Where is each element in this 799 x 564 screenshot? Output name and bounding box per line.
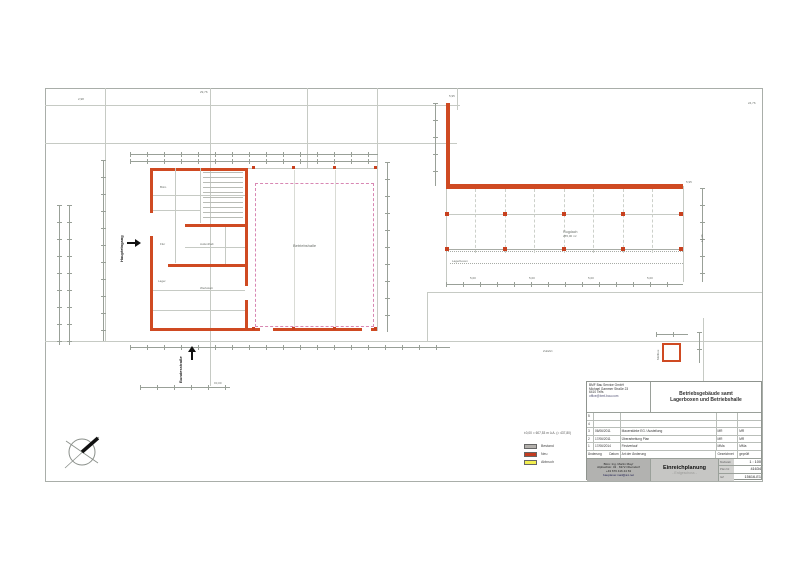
hall-column — [252, 166, 255, 169]
room-label: Büro — [160, 186, 166, 189]
legend-swatch-neu — [524, 452, 537, 457]
entrance-arrow-icon — [127, 239, 141, 247]
storage-column — [621, 212, 625, 216]
dim-text: 5,95 — [686, 181, 692, 184]
storage-column — [679, 212, 683, 216]
construction-line — [446, 188, 447, 282]
title-block: BMF Bau Service GmbH Michael Gammer Stra… — [586, 381, 762, 480]
partition-line — [153, 290, 245, 291]
rev-date: 17/06/2014 — [594, 443, 621, 450]
dimension-chain — [130, 159, 378, 164]
project-title-block: Betriebsgebäude samt Lagerboxen und Betr… — [651, 382, 761, 413]
dim-text: 5,00 — [529, 277, 535, 280]
rev-header-gepr: geprüft — [738, 451, 761, 458]
dimension-chain — [140, 385, 230, 390]
company-line: office@bmf-bau.com — [589, 395, 648, 399]
meta-label: Plan Nr. — [719, 466, 734, 472]
wall-segment — [168, 264, 247, 267]
storage-row-line — [450, 263, 683, 264]
hall-edge-line — [377, 168, 378, 331]
project-title: Lagerboxen und Betriebshalle — [670, 397, 742, 404]
hall-grid-line — [335, 170, 336, 328]
construction-line — [45, 105, 460, 106]
wall-segment — [150, 328, 260, 331]
street-label: Bundesstraße — [179, 356, 184, 383]
architect-line: bauplaner.mail@a1.net — [603, 474, 634, 478]
revision-row: 5 — [587, 413, 761, 421]
hall-column — [333, 166, 336, 169]
rev-nr: 5 — [587, 413, 594, 420]
canopy-area-label: 255,00 m² — [563, 235, 577, 238]
rev-text: Mauerstärke EG / Austeilung — [621, 428, 717, 435]
partition-line — [153, 310, 245, 311]
dimension-chain — [446, 282, 683, 287]
boundary-wall — [446, 103, 450, 186]
room-label: Werkstatt — [200, 287, 213, 290]
storage-bay-line — [593, 189, 594, 253]
hall-column — [252, 327, 255, 330]
wall-segment — [150, 236, 153, 331]
dim-text: ±0,00 — [214, 382, 222, 385]
wall-segment — [150, 168, 153, 213]
dimension-chain — [433, 103, 438, 186]
wall-segment — [185, 224, 247, 227]
construction-line — [427, 292, 762, 293]
architect-block: Büro: Ing. Martin Mayr Alpbachstr. 43 · … — [587, 459, 651, 481]
legend-label-abbruch: Abbruch — [541, 460, 554, 464]
hall-label: Betriebshalle — [293, 244, 316, 249]
rev-nr: 3 — [587, 428, 594, 435]
dim-text: 5,95 — [449, 95, 455, 98]
construction-line — [427, 292, 428, 341]
revision-row: 3 06/06/2011 Mauerstärke EG / Austeilung… — [587, 428, 761, 436]
driveway-label: Zufahrt — [543, 350, 553, 353]
storage-bay-line — [534, 189, 535, 253]
rev-nr: 4 — [587, 421, 594, 428]
dimension-chain — [656, 332, 688, 337]
storage-bay-line — [505, 189, 506, 253]
legend-label-neu: Neu — [541, 452, 547, 456]
waste-box-outline — [662, 343, 681, 362]
storage-column — [445, 247, 449, 251]
rev-gepr: MR — [738, 428, 761, 435]
rev-gepr — [738, 413, 761, 420]
partition-line — [153, 210, 200, 211]
rev-gepr: MMa — [738, 443, 761, 450]
dim-text: 2,98 — [78, 98, 84, 101]
meta-row: Maßstab 1 : 100 — [719, 459, 763, 466]
dimension-chain — [697, 332, 702, 363]
plan-sheet: Müllbox Büro Flur Lager Werkstatt Aufent… — [0, 0, 799, 564]
revision-row: 1 17/06/2014 Firstverlauf MMa MMa — [587, 443, 761, 451]
storage-column — [445, 212, 449, 216]
dimension-chain — [57, 205, 62, 345]
rev-gepr: MR — [738, 436, 761, 443]
rev-gez: MR — [717, 436, 739, 443]
rev-text — [621, 413, 717, 420]
legend-level-note: ±0,00 = 607,53 m ü.A. (= 437,80) — [524, 432, 571, 436]
hall-column — [292, 166, 295, 169]
storage-bay-line — [564, 189, 565, 253]
hall-roof-outline — [255, 183, 374, 327]
hall-column — [333, 327, 336, 330]
dim-text: 5,00 — [588, 277, 594, 280]
storage-column — [503, 212, 507, 216]
compass-icon — [58, 428, 106, 476]
hall-edge-line — [248, 168, 378, 169]
storage-column — [562, 247, 566, 251]
company-block: BMF Bau Service GmbH Michael Gammer Stra… — [587, 382, 651, 413]
dimension-chain — [130, 152, 378, 157]
room-label: Lager — [158, 280, 166, 283]
legend-swatch-abbruch — [524, 460, 537, 465]
meta-value-scale: 1 : 100 — [734, 460, 763, 464]
revision-row: 2 17/06/2011 Überarbeitung Plan MR MR — [587, 436, 761, 444]
dim-text: 12,46 — [701, 234, 704, 242]
storage-column — [679, 247, 683, 251]
construction-line — [457, 88, 458, 110]
construction-line — [703, 318, 704, 381]
rev-text: Firstverlauf — [621, 443, 717, 450]
meta-label: GZ — [719, 474, 734, 481]
rev-gez: MR — [717, 428, 739, 435]
storage-column — [621, 247, 625, 251]
meta-row: Plan Nr. 41634 — [719, 466, 763, 473]
construction-line — [683, 186, 684, 282]
rev-header-art: Art der Änderung — [621, 451, 717, 458]
rev-header-aenderung: Änderung — [588, 451, 602, 458]
dim-text: 29,76 — [200, 91, 208, 94]
rev-gez — [717, 421, 739, 428]
rev-nr: 1 — [587, 443, 594, 450]
waste-box-label: Müllbox — [657, 350, 660, 360]
rev-gez — [717, 413, 739, 420]
storage-column — [503, 247, 507, 251]
revision-row: 4 — [587, 421, 761, 429]
legend-label-bestand: Bestand — [541, 444, 554, 448]
rev-date — [594, 421, 621, 428]
dimension-chain — [385, 162, 390, 332]
rev-nr: 2 — [587, 436, 594, 443]
wall-segment — [150, 168, 248, 171]
storage-bay-line — [475, 189, 476, 253]
rev-header-datum: Datum — [609, 451, 618, 458]
meta-label: Maßstab — [719, 459, 734, 465]
dim-text: 5,00 — [647, 277, 653, 280]
meta-value-gz: 15616-E1 — [734, 475, 763, 479]
rev-header-gez: Gezeichnet — [716, 451, 738, 458]
construction-line — [45, 143, 457, 144]
meta-value-plan-nr: 41634 — [734, 467, 763, 471]
rev-gez: MMa — [717, 443, 739, 450]
plan-type-block: Einreichplanung - Erdgeschoss - — [651, 459, 719, 481]
partition-line — [225, 227, 226, 264]
wall-segment — [245, 300, 248, 331]
room-label: Aufenthalt — [200, 243, 214, 246]
rev-date: 17/06/2011 — [594, 436, 621, 443]
entrance-arrow-icon — [188, 346, 196, 360]
storage-label: Lagerboxen — [452, 260, 468, 263]
meta-block: Maßstab 1 : 100 Plan Nr. 41634 GZ 15616-… — [719, 459, 763, 481]
partition-line — [185, 247, 245, 248]
wall-segment — [245, 168, 248, 286]
dim-text: 5,00 — [470, 277, 476, 280]
legend-swatch-bestand — [524, 444, 537, 449]
room-label: Flur — [160, 243, 165, 246]
wall-segment — [273, 328, 362, 331]
plan-subtitle: - Erdgeschoss - — [672, 471, 697, 475]
construction-line — [210, 88, 211, 386]
storage-bay-line — [623, 189, 624, 253]
rev-date — [594, 413, 621, 420]
hall-column — [292, 327, 295, 330]
stairs — [203, 172, 243, 220]
rev-text — [621, 421, 717, 428]
main-entrance-label: Haupteingang — [120, 235, 125, 262]
construction-line — [45, 341, 762, 342]
dimension-chain — [101, 160, 106, 341]
revision-header-row: Änderung Datum Art der Änderung Gezeichn… — [587, 451, 761, 459]
hall-grid-line — [294, 170, 295, 328]
storage-bay-line — [652, 189, 653, 253]
rev-gepr — [738, 421, 761, 428]
partition-line — [175, 168, 176, 263]
dim-text: 24,76 — [748, 102, 756, 105]
dimension-chain — [130, 345, 450, 350]
storage-column — [562, 212, 566, 216]
dimension-chain — [67, 205, 72, 345]
rev-date: 06/06/2011 — [594, 428, 621, 435]
meta-row: GZ 15616-E1 — [719, 474, 763, 481]
rev-text: Überarbeitung Plan — [621, 436, 717, 443]
hall-column — [374, 166, 377, 169]
hall-column — [374, 327, 377, 330]
